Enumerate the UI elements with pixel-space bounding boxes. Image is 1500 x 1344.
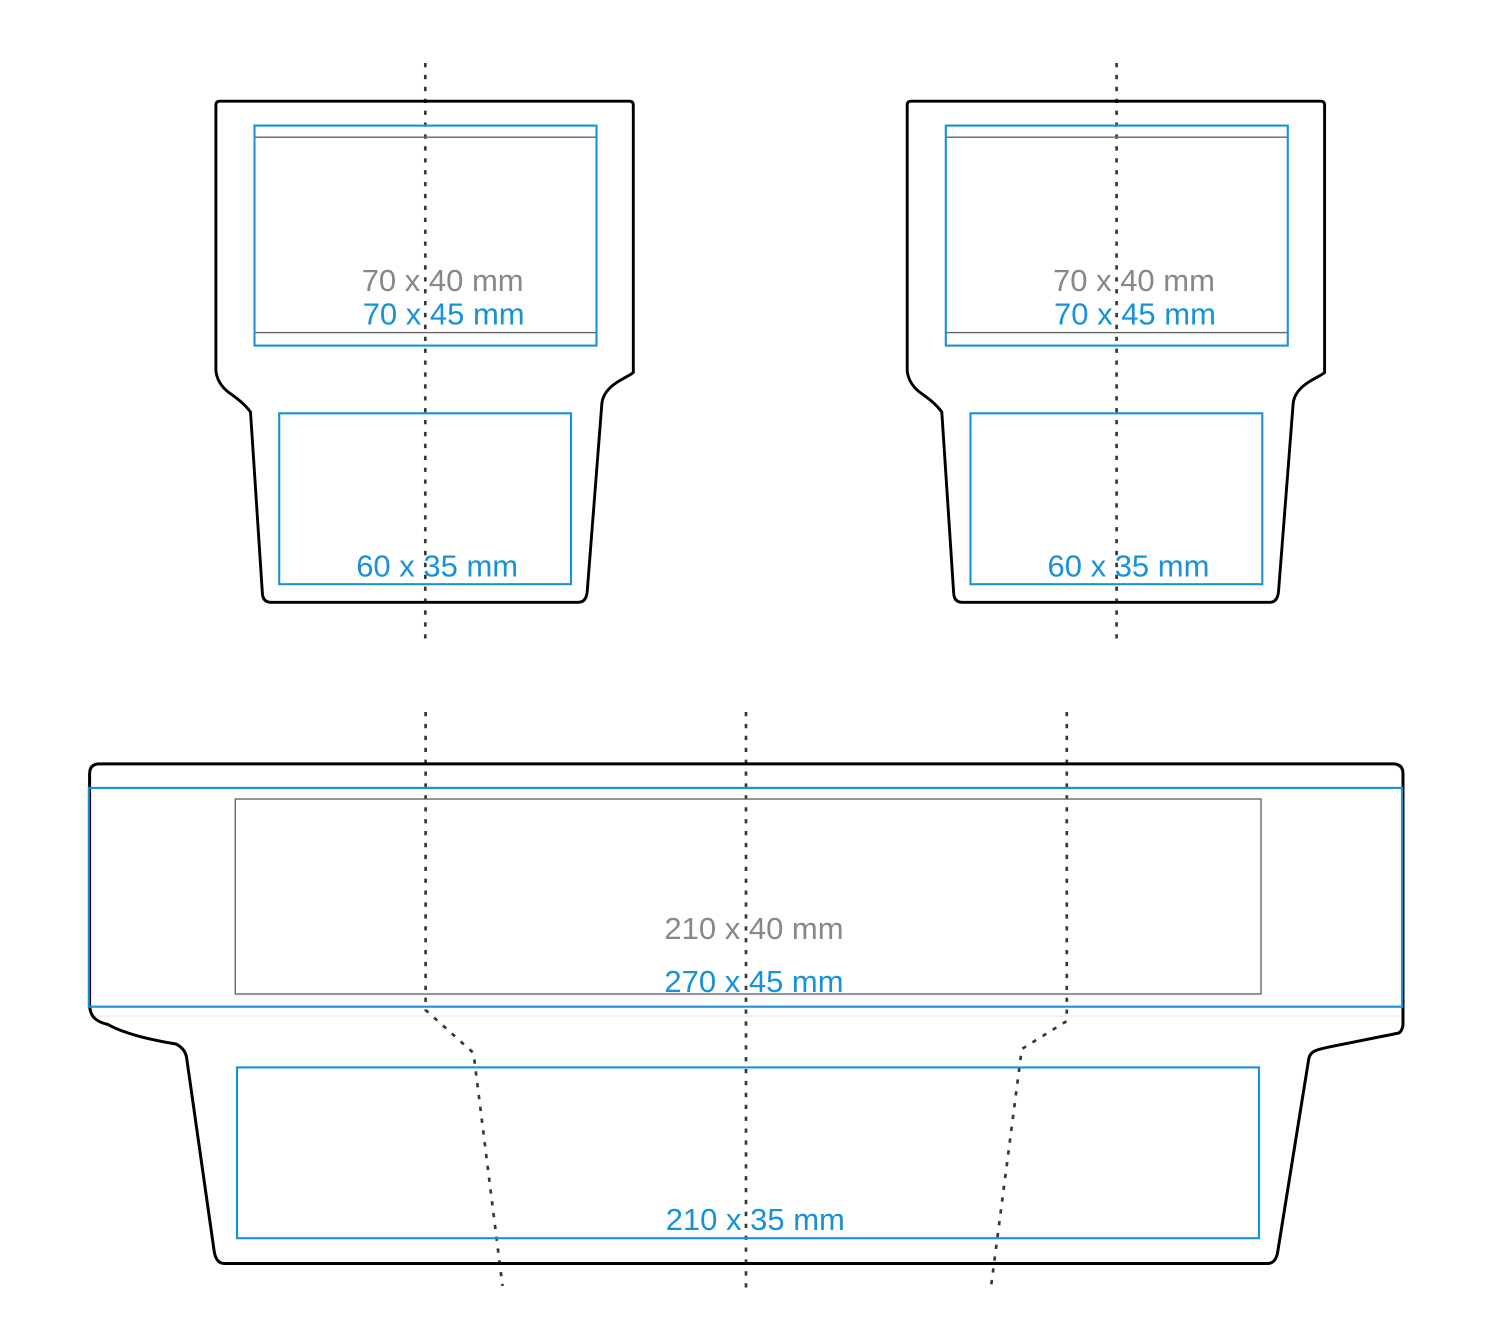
svg-text:70 x 40 mm: 70 x 40 mm	[362, 263, 524, 298]
svg-text:70 x 40 mm: 70 x 40 mm	[1053, 263, 1215, 298]
svg-text:70 x 45 mm: 70 x 45 mm	[363, 297, 525, 332]
svg-text:270 x 45 mm: 270 x 45 mm	[664, 964, 843, 999]
svg-text:210 x 40 mm: 210 x 40 mm	[664, 911, 843, 946]
svg-text:70 x 45 mm: 70 x 45 mm	[1054, 297, 1216, 332]
svg-text:60 x 35 mm: 60 x 35 mm	[1048, 549, 1210, 584]
svg-text:60 x 35 mm: 60 x 35 mm	[356, 549, 518, 584]
svg-text:210 x 35 mm: 210 x 35 mm	[666, 1202, 845, 1237]
